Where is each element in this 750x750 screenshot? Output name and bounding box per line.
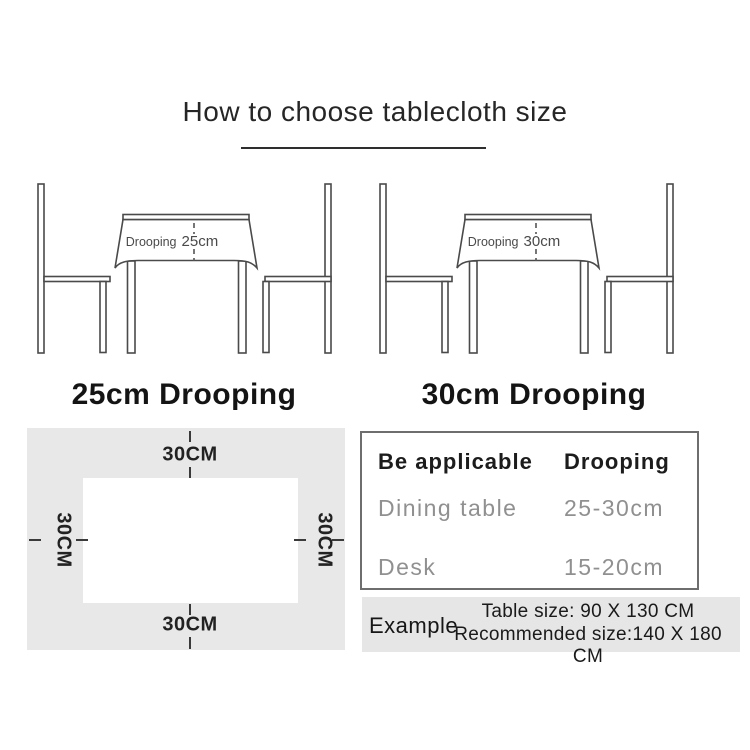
dash-left-inner bbox=[76, 539, 88, 541]
table-with-cloth-icon: Drooping30cm bbox=[457, 215, 599, 354]
dash-right-inner bbox=[294, 539, 306, 541]
table-header-be-applicable: Be applicable bbox=[378, 449, 533, 475]
dimension-label-top: 30CM bbox=[162, 444, 217, 467]
chair-right-icon bbox=[263, 184, 331, 353]
caption-25cm-drooping: 25cm Drooping bbox=[34, 378, 334, 412]
dimension-panel: 30CM 30CM 30CM 30CM bbox=[27, 428, 345, 650]
example-box: Example Table size: 90 X 130 CM Recommen… bbox=[362, 597, 740, 652]
table-cell-dining-table: Dining table bbox=[378, 495, 517, 522]
example-recommended-size: Recommended size:140 X 180 CM bbox=[440, 624, 736, 668]
dash-top-outer bbox=[189, 431, 191, 442]
tablecloth-size-infographic: How to choose tablecloth size Drooping25… bbox=[0, 0, 750, 750]
dash-bottom-outer bbox=[189, 637, 191, 649]
dash-top-inner bbox=[189, 467, 191, 478]
chair-right-icon bbox=[605, 184, 673, 353]
svg-text:Drooping25cm: Drooping25cm bbox=[126, 233, 218, 250]
drooping-size-table: Be applicable Drooping Dining table 25-3… bbox=[360, 431, 699, 590]
chair-left-icon bbox=[38, 184, 110, 353]
diagram-25cm-drooping: Drooping25cm bbox=[20, 170, 360, 360]
table-with-cloth-icon: Drooping25cm bbox=[115, 215, 257, 354]
svg-text:Drooping30cm: Drooping30cm bbox=[468, 233, 560, 250]
table-cell-desk-drooping: 15-20cm bbox=[564, 554, 664, 581]
table-cell-desk: Desk bbox=[378, 554, 436, 581]
dimension-label-left: 30CM bbox=[52, 512, 75, 567]
dash-left-outer bbox=[29, 539, 41, 541]
chair-left-icon bbox=[380, 184, 452, 353]
example-table-size: Table size: 90 X 130 CM bbox=[440, 601, 736, 623]
diagram-30cm-drooping: Drooping30cm bbox=[362, 170, 702, 360]
caption-30cm-drooping: 30cm Drooping bbox=[384, 378, 684, 412]
dimension-label-right: 30CM bbox=[313, 512, 336, 567]
dimension-label-bottom: 30CM bbox=[162, 614, 217, 637]
tabletop-rectangle bbox=[83, 478, 298, 603]
table-header-drooping: Drooping bbox=[564, 449, 670, 475]
example-lines: Table size: 90 X 130 CM Recommended size… bbox=[440, 597, 736, 652]
table-cell-dining-drooping: 25-30cm bbox=[564, 495, 664, 522]
page-title: How to choose tablecloth size bbox=[0, 96, 750, 128]
title-underline bbox=[241, 147, 486, 149]
